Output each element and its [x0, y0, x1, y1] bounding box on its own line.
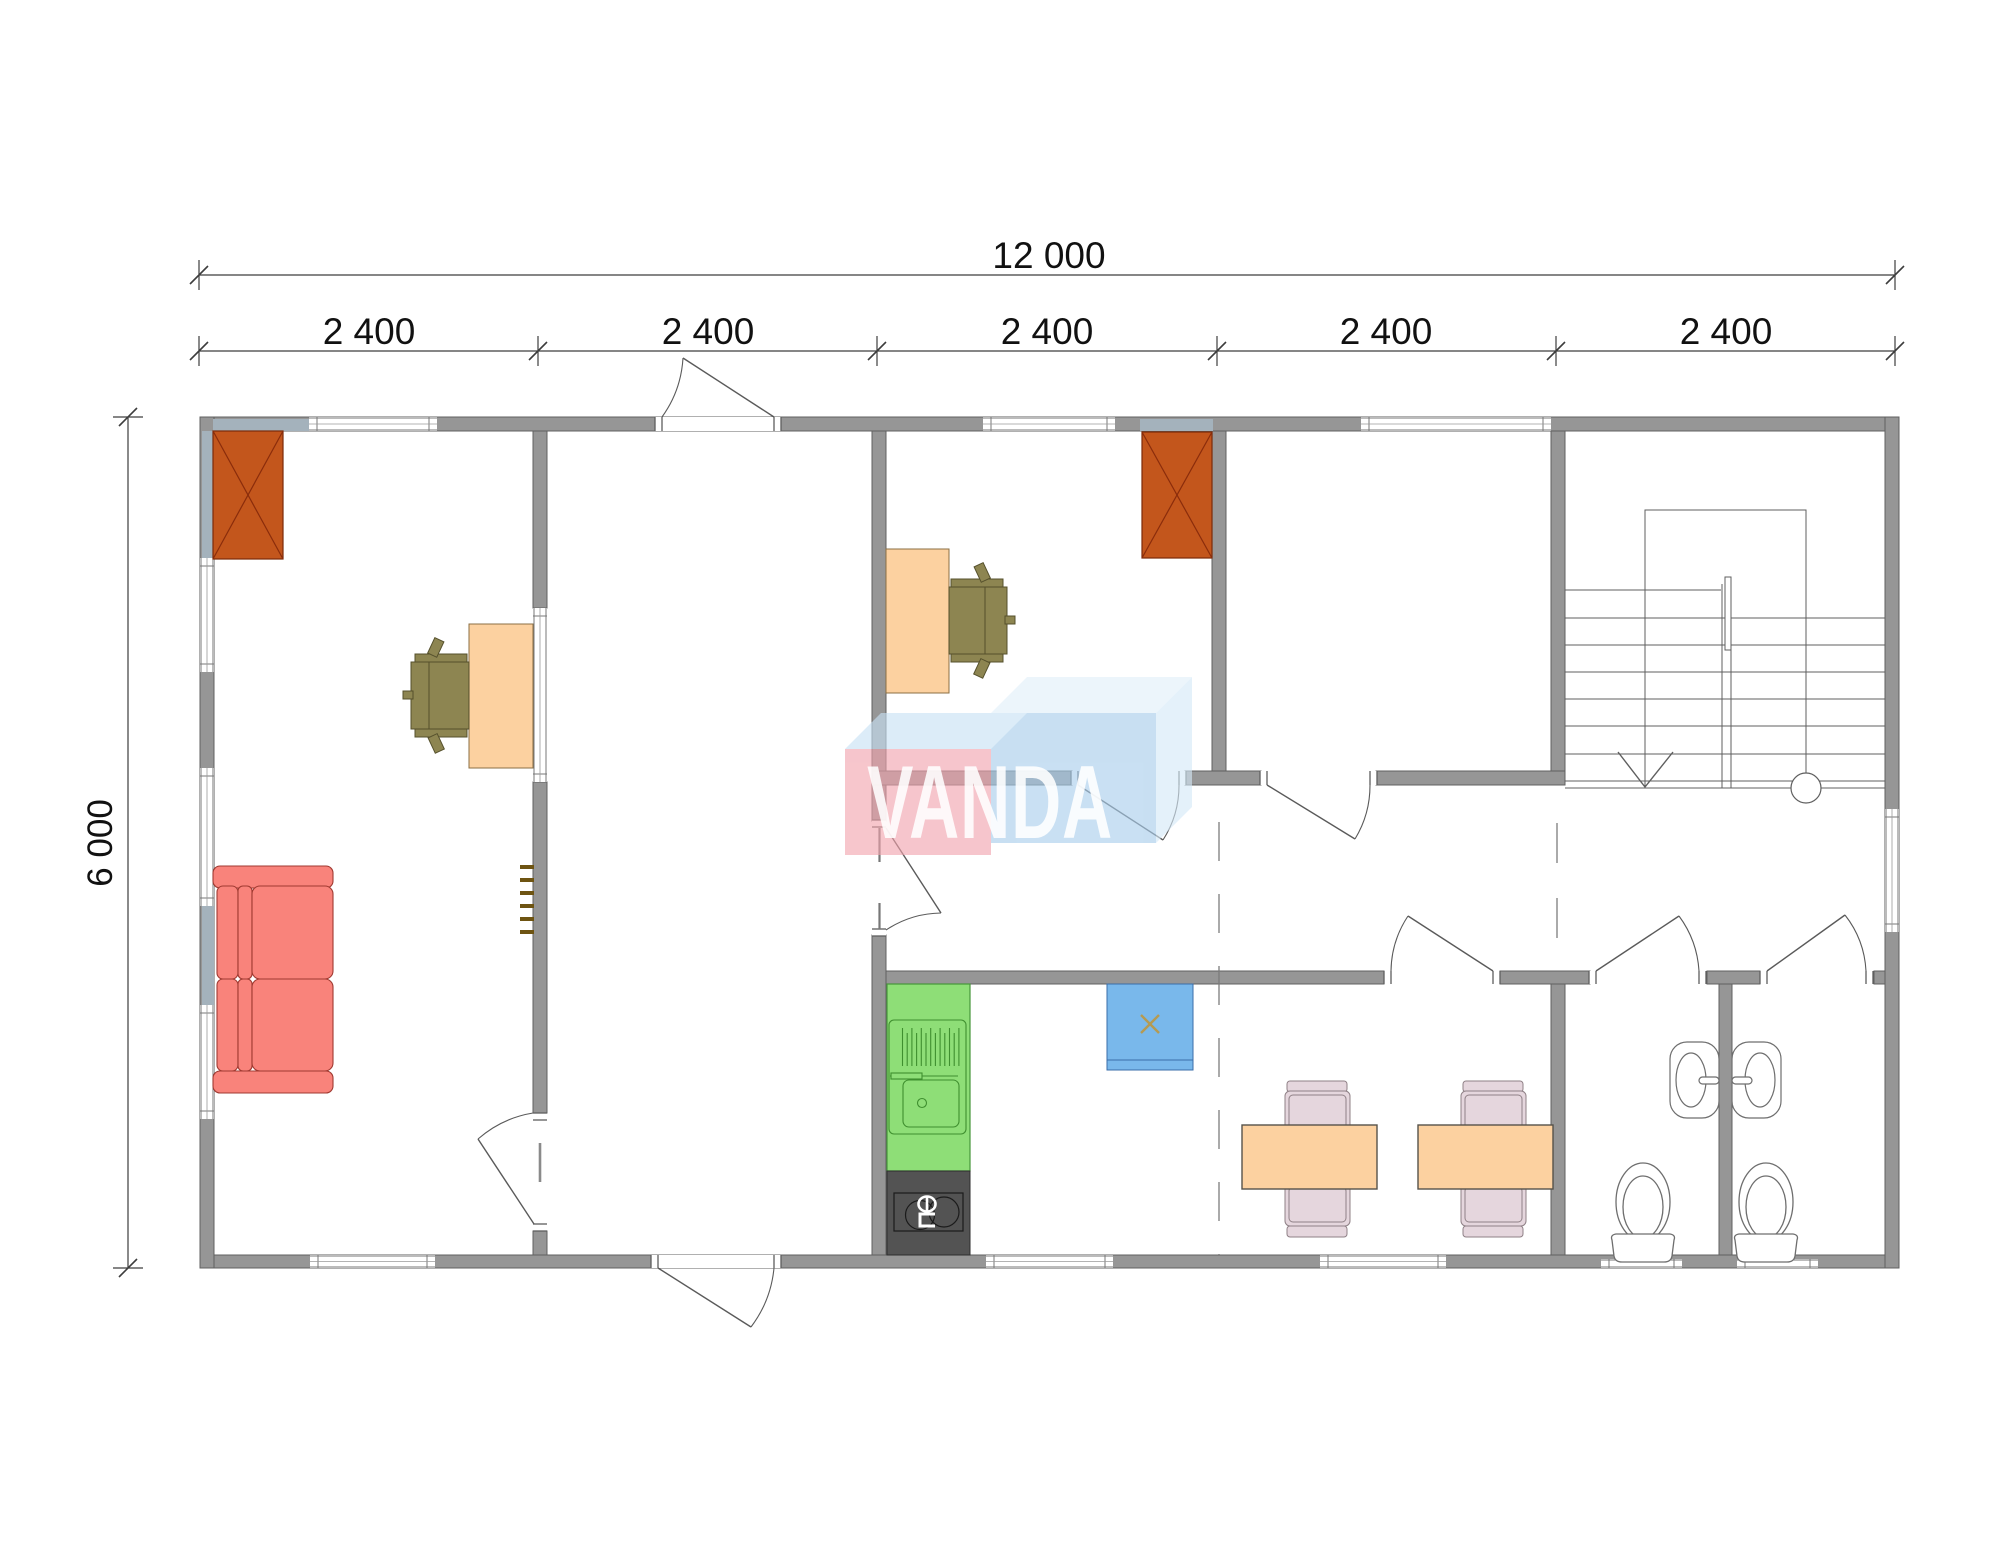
svg-text:2 400: 2 400 — [1340, 311, 1433, 352]
svg-text:6 000: 6 000 — [81, 799, 120, 887]
svg-text:VANDA: VANDA — [867, 744, 1113, 860]
svg-text:2 400: 2 400 — [662, 311, 755, 352]
svg-text:2 400: 2 400 — [1680, 311, 1773, 352]
svg-text:2 400: 2 400 — [1001, 311, 1094, 352]
svg-text:2 400: 2 400 — [323, 311, 416, 352]
svg-text:12 000: 12 000 — [992, 235, 1105, 276]
